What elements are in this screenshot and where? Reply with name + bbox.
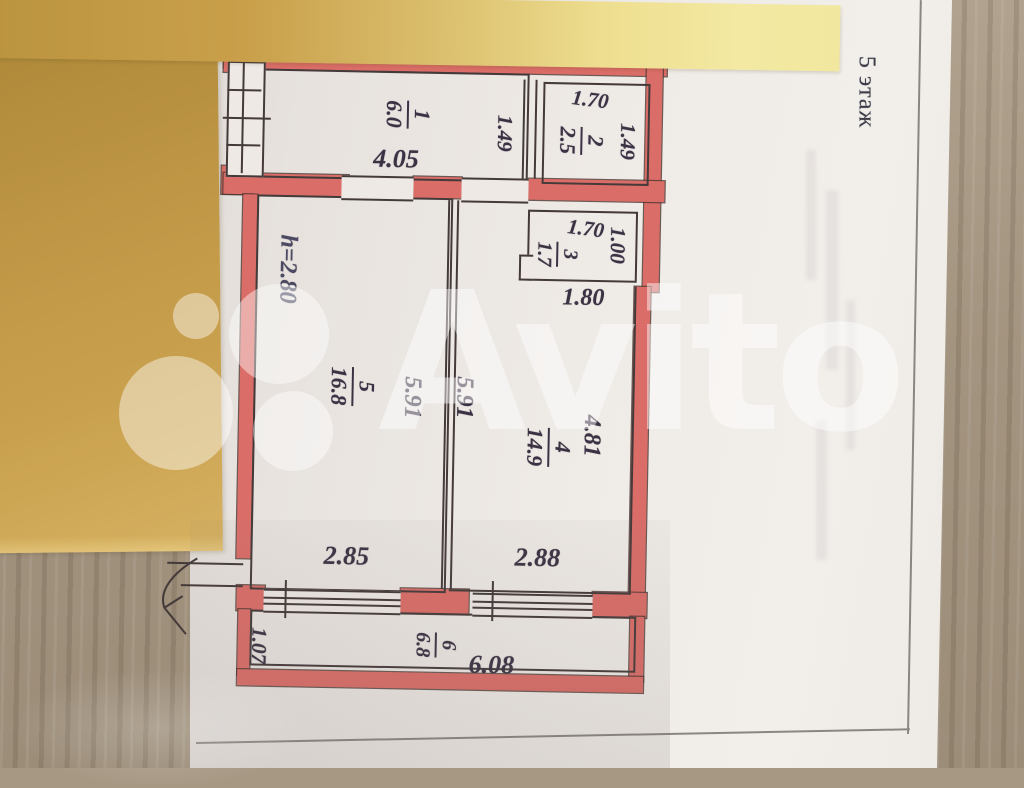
floor-plan: 1 6.0 2 2.5 3 1.7 4 14.9 5 16.8 6 6.8 4.… [209, 36, 672, 705]
room1-number: 1 [407, 101, 434, 129]
entrance-door-swing [151, 548, 254, 685]
wall-bottom-right-corner [592, 592, 646, 618]
bleed-through-mark [826, 190, 838, 370]
balcony-wall-bottom [237, 669, 643, 693]
dim-room4-length: 5.91 [452, 376, 477, 418]
doorway-opening-2 [461, 177, 528, 203]
room2-number: 2 [580, 127, 607, 155]
room5-label: 5 16.8 [327, 367, 378, 406]
room3-door-notch [519, 254, 533, 280]
room6-number: 6 [434, 632, 458, 657]
dim-room3-width: 1.70 [566, 216, 605, 241]
room5-number: 5 [351, 367, 378, 406]
dim-room5-length: 5.91 [400, 376, 425, 418]
sticky-note-left [0, 0, 223, 553]
floor-number-label: 5 этаж [853, 56, 880, 128]
dim-room3-outer: 1.80 [562, 285, 604, 310]
dim-room4-depth: 4.81 [579, 415, 604, 457]
dim-room4-width: 2.88 [514, 544, 560, 571]
room4-area: 14.9 [523, 427, 548, 466]
bleed-through-mark [816, 420, 827, 560]
room3-label: 3 1.7 [534, 241, 580, 267]
dim-room1-depth: 1.49 [494, 115, 516, 152]
dim-room2-depth: 1.49 [617, 123, 639, 160]
room1-area: 6.0 [383, 100, 408, 128]
room6-label: 6 6.8 [412, 632, 458, 658]
dim-room3-depth: 1.00 [607, 227, 629, 264]
room3-number: 3 [556, 242, 580, 267]
doorway-opening-1 [341, 175, 413, 201]
partition-room1-room2 [522, 80, 538, 179]
room5-area: 16.8 [327, 367, 352, 406]
room4-label: 4 14.9 [523, 427, 574, 466]
room2-label: 2 2.5 [556, 126, 607, 154]
room2-area: 2.5 [556, 126, 581, 154]
dim-room1-width: 4.05 [373, 146, 419, 173]
room1-label: 1 6.0 [383, 100, 434, 128]
ceiling-height-label: h=2.80 [275, 234, 300, 303]
sticky-note-fold [0, 535, 223, 553]
dim-room2-width: 1.70 [571, 87, 610, 112]
dim-balcony-width: 6.08 [468, 652, 514, 679]
room3-area: 1.7 [534, 241, 556, 266]
bleed-through-mark [806, 150, 816, 280]
room4-number: 4 [547, 428, 574, 467]
dim-room5-width: 2.85 [323, 543, 369, 570]
bleed-through-mark [846, 300, 855, 450]
dim-balcony-depth: 1.07 [248, 627, 270, 664]
room6-area: 6.8 [412, 632, 434, 657]
